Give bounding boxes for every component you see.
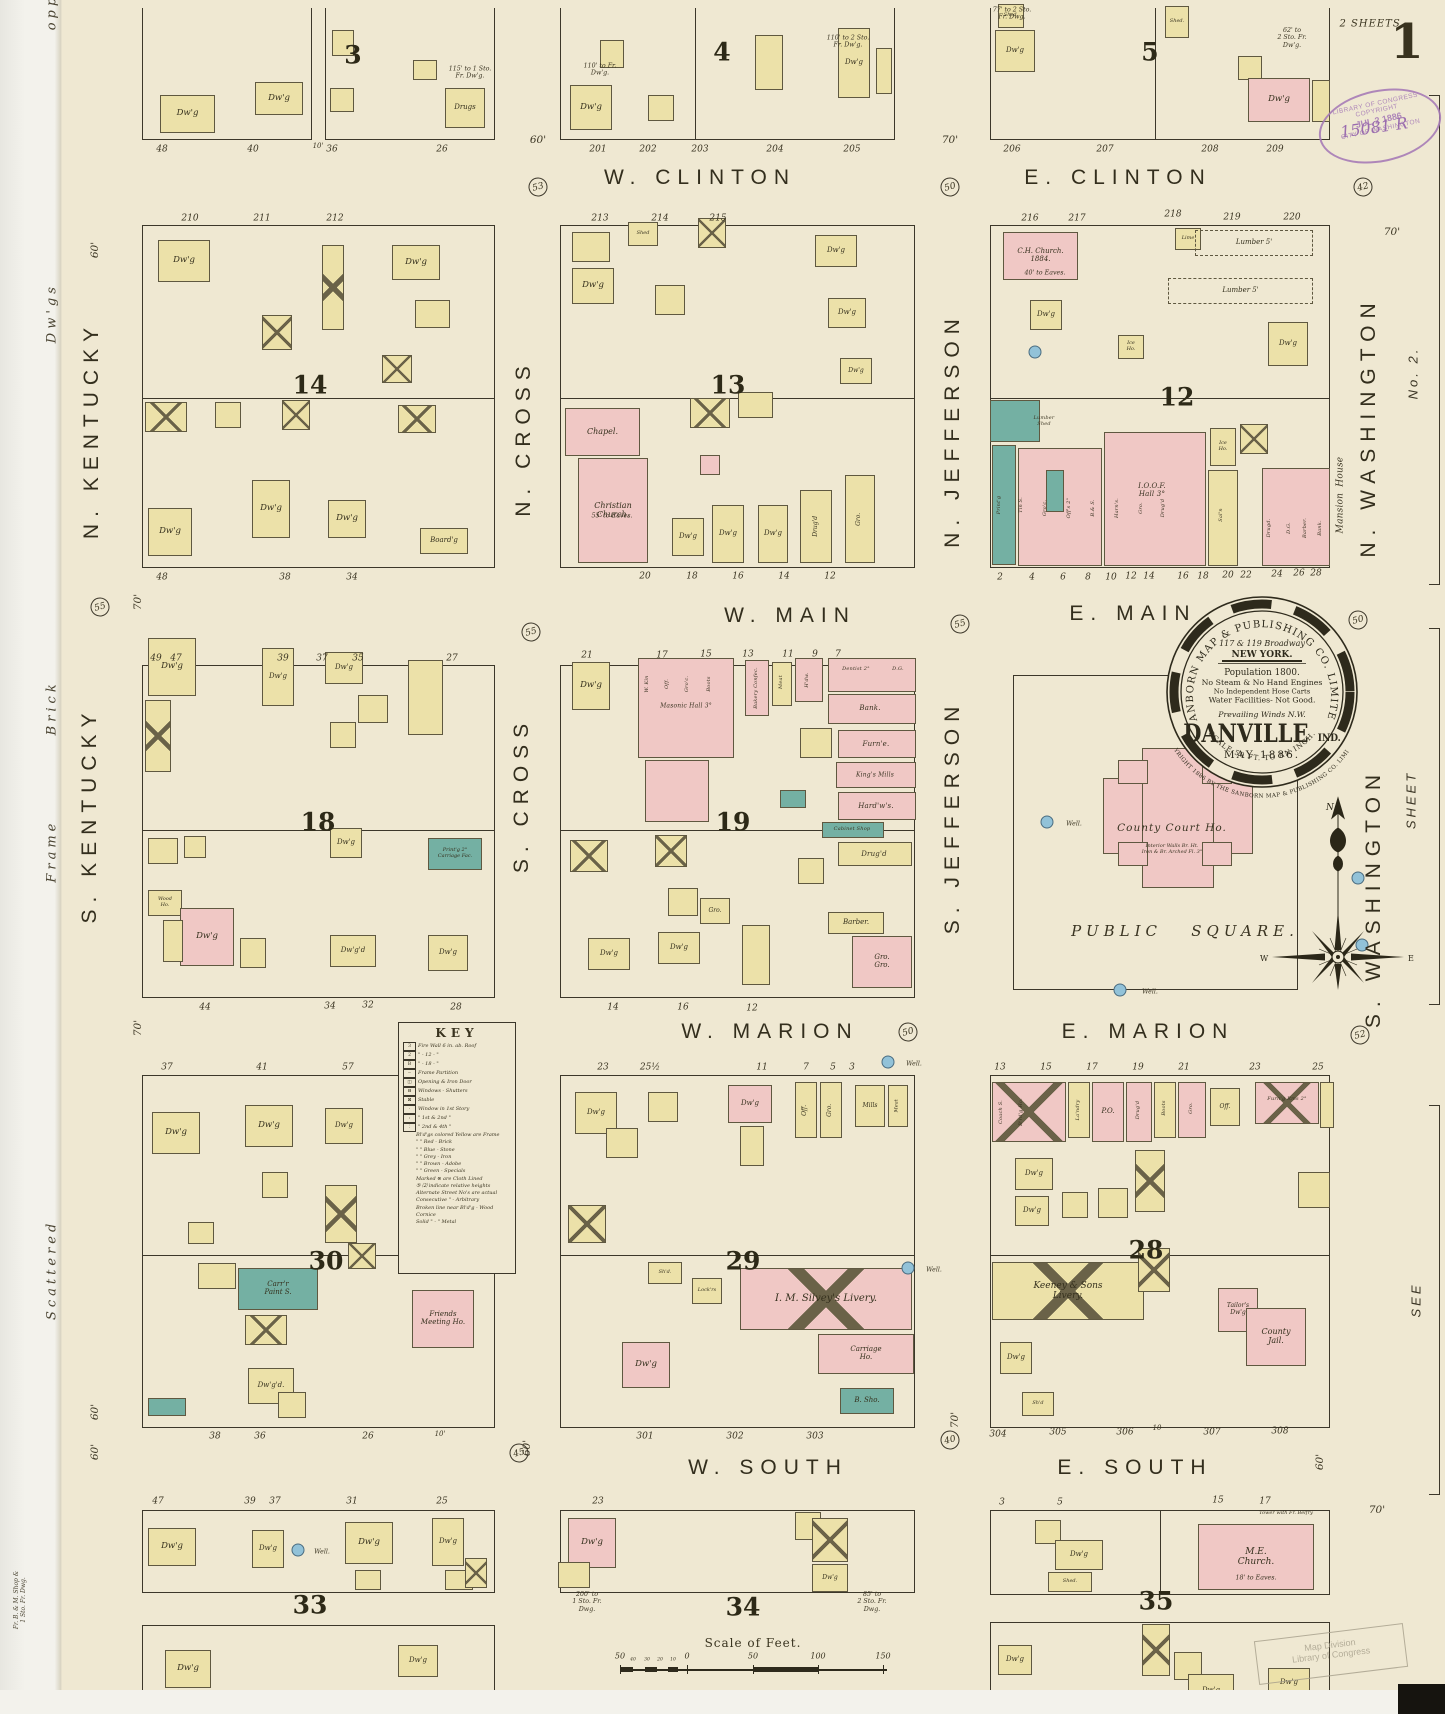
- building: Dw'g: [572, 268, 614, 304]
- key-symbol-icon: 3: [403, 1042, 416, 1051]
- map-annotation: 207: [1096, 145, 1113, 156]
- building-label: Dw'g: [679, 533, 697, 541]
- map-annotation: 10: [670, 1657, 676, 1662]
- map-annotation: 204: [766, 145, 783, 156]
- building-label: Sh'd.: [659, 1270, 672, 1276]
- building-label: Print'g 2° Carriage Fac.: [438, 848, 472, 859]
- scale-bar-tick: [687, 1665, 688, 1674]
- building: Dw'g: [158, 240, 210, 282]
- building-label: B. Sho.: [854, 1397, 879, 1405]
- building: [645, 760, 709, 822]
- building-label: Dw'g'd.: [258, 1382, 285, 1390]
- compass-north-label: N: [1325, 803, 1335, 813]
- block-number: 30: [309, 1247, 344, 1276]
- map-canvas: Dw'gDw'gDrugsDw'gDw'gDw'gShed.Shed.Dw'gD…: [0, 0, 1445, 1714]
- key-line-text: " " Brown - Adobe: [416, 1161, 461, 1168]
- building: [262, 315, 292, 350]
- building: Dw'g: [432, 1518, 464, 1566]
- building-label: Dw'g: [258, 1121, 280, 1131]
- map-annotation: 200' to 1 Sto. Fr. Dwg.: [572, 1591, 601, 1613]
- building-label: Dw'g: [177, 1664, 199, 1674]
- sheet-number: 1: [1390, 14, 1423, 70]
- building: [198, 1263, 236, 1289]
- key-symbol-icon: ⊠: [403, 1096, 416, 1105]
- building: [1062, 1192, 1088, 1218]
- map-annotation: 110' to 2 Sto. Fr. Dw'g.: [827, 35, 870, 50]
- building: [465, 1558, 487, 1588]
- building: [1298, 1172, 1330, 1208]
- building: [648, 1092, 678, 1122]
- sheet-reference-label: SEE: [1409, 1282, 1424, 1317]
- sanborn-title-seal: SANBORN MAP & PUBLISHING CO. LIMITED 117…: [1147, 580, 1377, 812]
- key-line: " " Green - Specials: [403, 1168, 511, 1175]
- map-annotation: Dentist 2°: [842, 667, 870, 673]
- key-line: ◫Opening & Iron Door: [403, 1078, 511, 1087]
- building-label: Meat: [895, 1099, 901, 1112]
- street-label: S. KENTUCKY: [78, 706, 102, 923]
- key-line-text: " " Green - Specials: [416, 1168, 465, 1175]
- map-annotation: 9: [812, 650, 818, 661]
- map-annotation: 6: [1060, 573, 1066, 584]
- map-annotation: 308: [1271, 1427, 1288, 1438]
- block-number: 35: [1139, 1587, 1174, 1616]
- building-label: Dw'g: [173, 256, 195, 266]
- map-annotation: Masonic Hall 3°: [660, 702, 712, 709]
- map-annotation: 0: [684, 1651, 689, 1660]
- key-line: Solid " - " Metal: [403, 1219, 511, 1226]
- map-annotation: Bank.: [1318, 520, 1324, 536]
- map-annotation: Mansion House: [1336, 457, 1347, 534]
- key-symbol-icon: [403, 1208, 414, 1215]
- key-symbol-icon: ⁚: [403, 1123, 416, 1132]
- building: Off.: [795, 1082, 817, 1138]
- map-annotation: 5: [1057, 1498, 1063, 1509]
- scale-bar-tick: [818, 1665, 819, 1674]
- key-line-text: Marked ⊗ are Cloth Lined: [416, 1176, 483, 1183]
- street-width-badge: 55: [519, 620, 542, 643]
- key-line: ·Window in 1st Story: [403, 1105, 511, 1114]
- map-annotation: 38: [209, 1432, 220, 1443]
- key-line: 2" - 12 - ": [403, 1051, 511, 1060]
- map-annotation: B'rd'g Ho.: [1019, 1098, 1025, 1126]
- key-symbol-icon: [403, 1161, 414, 1168]
- map-annotation: 218: [1164, 210, 1181, 221]
- map-annotation: 17: [1086, 1063, 1097, 1074]
- building: Christian Church.: [578, 458, 648, 563]
- map-annotation: 209: [1266, 145, 1283, 156]
- building: Print'g 2° Carriage Fac.: [428, 838, 482, 870]
- building-label: Dw'g: [405, 258, 427, 268]
- map-annotation: 21: [581, 651, 592, 662]
- map-annotation: 303: [806, 1432, 823, 1443]
- map-annotation: 18' to Eaves.: [1236, 1574, 1277, 1581]
- key-line: Bl'd'gs colored Yellow are Frame: [403, 1132, 511, 1139]
- building: Dw'g: [255, 82, 303, 115]
- map-annotation: 2: [997, 573, 1003, 584]
- key-line: Broken line near Bl'd'g - Wood Cornice: [403, 1205, 511, 1220]
- map-annotation: 4: [1029, 573, 1035, 584]
- map-annotation: Gro'c.: [685, 676, 691, 692]
- building-label: Dw'g: [719, 530, 737, 538]
- map-annotation: 17: [1259, 1497, 1270, 1508]
- key-line-text: " 2nd & 4th ": [418, 1124, 451, 1131]
- map-annotation: 26: [362, 1432, 373, 1443]
- building: [145, 402, 187, 432]
- map-annotation: County Court Ho.: [1117, 822, 1227, 834]
- key-line: Consecutive " - Arbitrary: [403, 1197, 511, 1204]
- street-width-badge: 50: [938, 175, 961, 198]
- key-line-text: Broken line near Bl'd'g - Wood Cornice: [416, 1205, 511, 1220]
- key-line: ┄Frame Partition: [403, 1069, 511, 1078]
- building: Dw'g: [658, 932, 700, 964]
- map-annotation: 32: [362, 1001, 373, 1012]
- map-annotation: 213: [591, 214, 608, 225]
- map-annotation: 16: [732, 572, 743, 583]
- map-annotation: Hard'w's.: [858, 802, 894, 810]
- building: [278, 1392, 306, 1418]
- building-label: Off.: [803, 1104, 810, 1115]
- building: [568, 1205, 606, 1243]
- key-line-text: " " Red - Brick: [416, 1139, 452, 1146]
- building: Gro.: [845, 475, 875, 563]
- key-symbol-icon: [403, 1154, 414, 1161]
- map-annotation: 21: [1178, 1063, 1189, 1074]
- building-label: Shed: [637, 231, 650, 237]
- map-annotation: 205: [843, 145, 860, 156]
- map-annotation: 302: [726, 1432, 743, 1443]
- key-line: ⊠Stable: [403, 1096, 511, 1105]
- building-label: Dw'g: [1007, 1354, 1025, 1362]
- map-annotation: 26: [436, 145, 447, 156]
- building-label: Dw'g: [161, 1542, 183, 1552]
- map-annotation: 40: [630, 1657, 636, 1662]
- map-annotation: Furn'g Rms 2°: [1267, 1097, 1306, 1103]
- building-label: Dw'g: [1006, 1656, 1024, 1664]
- map-annotation: 304: [989, 1430, 1006, 1441]
- map-annotation: 15: [1212, 1496, 1223, 1507]
- key-line-text: Stable: [418, 1097, 434, 1104]
- map-annotation: 62' to 2 Sto. Fr. Dw'g.: [1277, 27, 1306, 49]
- street-label: W. SOUTH: [688, 1456, 848, 1480]
- map-annotation: 18: [686, 572, 697, 583]
- alley-line: [1160, 1510, 1161, 1595]
- margin-note-scattered-dwellings: Scattered Frame Brick Dw'gs opp.: [45, 260, 60, 1320]
- building: Dw'g: [1015, 1196, 1049, 1226]
- building: [145, 700, 171, 772]
- building: [798, 858, 824, 884]
- scale-bar-segment: [753, 1667, 818, 1672]
- map-annotation: 60': [89, 1444, 101, 1460]
- key-line-text: Fire Wall 6 in. ab. Roof: [418, 1043, 476, 1050]
- map-annotation: 7: [835, 650, 841, 661]
- building-label: Dw'g: [165, 1128, 187, 1138]
- building-label: Dw'g: [848, 368, 863, 375]
- map-annotation: 15: [1040, 1063, 1051, 1074]
- key-line: Alternate Street No's are actual: [403, 1190, 511, 1197]
- building: Dw'g: [728, 1085, 772, 1123]
- map-annotation: 11: [756, 1063, 767, 1074]
- building: Dw'g: [712, 505, 744, 563]
- building: [828, 658, 916, 692]
- map-annotation: 210: [181, 214, 198, 225]
- building: Dw'g: [252, 1530, 284, 1568]
- building: Dw'g: [160, 95, 215, 133]
- building-label: Dw'g: [335, 1122, 353, 1130]
- building-label: Dw'g: [827, 247, 845, 255]
- seal-state: IND.: [1318, 732, 1341, 744]
- street-width-badge: 53: [526, 175, 549, 198]
- map-annotation: 70': [1369, 1504, 1385, 1516]
- map-annotation: 24: [1271, 570, 1282, 581]
- map-annotation: 206: [1003, 145, 1020, 156]
- building: Dw'g: [148, 1528, 196, 1566]
- map-annotation: Barber.: [1303, 518, 1309, 538]
- building-label: Gro. Gro.: [874, 954, 889, 970]
- street-width-badge: 55: [948, 612, 971, 635]
- building-label: Dw'g: [741, 1100, 759, 1108]
- map-annotation: 39: [244, 1497, 255, 1508]
- map-annotation: 203: [691, 145, 708, 156]
- key-line-text: Bl'd'gs colored Yellow are Frame: [416, 1132, 500, 1139]
- street-label: W. CLINTON: [604, 166, 796, 190]
- building: [1240, 424, 1268, 454]
- map-annotation: 70': [942, 134, 958, 146]
- block-number: 33: [293, 1591, 328, 1620]
- building: Dw'g: [568, 1518, 616, 1568]
- building-label: Lock'rs: [698, 1288, 717, 1294]
- key-symbol-icon: [403, 1219, 414, 1226]
- key-symbol-icon: ◫: [403, 1078, 416, 1087]
- building: Dw'g'd: [330, 935, 376, 967]
- seal-city: NEW YORK.: [1231, 650, 1292, 660]
- block-number: 14: [293, 371, 328, 400]
- key-symbol-icon: [403, 1168, 414, 1175]
- building-label: M.E. Church.: [1238, 1547, 1274, 1567]
- building: Dw'g: [1015, 1158, 1053, 1190]
- building: Dw'g: [392, 245, 440, 280]
- key-line: B" - 18 - ": [403, 1060, 511, 1069]
- building: Shed.: [1165, 6, 1189, 38]
- building: [780, 790, 806, 808]
- building: [1255, 1082, 1319, 1124]
- map-annotation: 48: [156, 145, 167, 156]
- building: [240, 938, 266, 968]
- building-label: Dw'g: [1023, 1207, 1041, 1215]
- map-annotation: 306: [1116, 1428, 1133, 1439]
- building: [1098, 1188, 1128, 1218]
- street-label: S. JEFFERSON: [941, 700, 965, 935]
- map-annotation: 12: [746, 1004, 757, 1015]
- map-key-legend: KEY 3Fire Wall 6 in. ab. Roof2" - 12 - "…: [398, 1022, 516, 1274]
- building-label: Lime: [1182, 236, 1195, 242]
- map-annotation: Gro'c.: [1043, 500, 1049, 516]
- map-annotation: 12: [824, 572, 835, 583]
- building-label: Dw'g: [196, 932, 218, 942]
- map-annotation: 150: [875, 1651, 890, 1660]
- map-annotation: Tower with Fr. Belfry: [1259, 1511, 1313, 1517]
- street-label: E. MARION: [1062, 1020, 1235, 1044]
- scan-page-edge-bottom: [0, 1690, 1445, 1714]
- map-annotation: Drug'd: [1136, 1101, 1142, 1120]
- street-label: N. WASHINGTON: [1357, 296, 1381, 557]
- seal-place: DANVILLE: [1183, 719, 1308, 748]
- map-annotation: 100: [810, 1651, 825, 1660]
- street-label: E. CLINTON: [1024, 166, 1211, 190]
- building: [148, 838, 178, 864]
- map-annotation: 34: [324, 1002, 335, 1013]
- map-annotation: 23: [592, 1497, 603, 1508]
- scale-bar-tick: [753, 1665, 754, 1674]
- building-label: Dw'g: [159, 527, 181, 537]
- building-label: Dw'g: [1268, 95, 1290, 105]
- block-number: 3: [344, 41, 361, 70]
- map-annotation: 77' to 2 Sto. Fr. Dwg.: [993, 7, 1032, 22]
- building: [282, 400, 310, 430]
- building: P.O.: [1092, 1082, 1124, 1142]
- map-annotation: 215: [709, 214, 726, 225]
- map-annotation: 219: [1223, 213, 1240, 224]
- map-annotation: 70': [132, 594, 144, 610]
- building-label: Chapel.: [587, 428, 618, 437]
- map-annotation: 39: [277, 654, 288, 665]
- building: [876, 48, 892, 94]
- building: [655, 835, 687, 867]
- map-annotation: Off's 2°: [1067, 498, 1073, 519]
- alley-line: [695, 8, 696, 140]
- building: Keeney & Sons Livery.: [992, 1262, 1144, 1320]
- sheet-reference-bracket: [1429, 95, 1440, 585]
- map-annotation: Well.: [1066, 820, 1082, 827]
- key-title: KEY: [403, 1026, 511, 1040]
- map-annotation: 50: [748, 1651, 758, 1660]
- compass-east-label: E: [1408, 954, 1414, 963]
- map-annotation: Interior Walls Br. Ht. Iron & Br. Arched…: [1142, 844, 1203, 856]
- map-annotation: 25½: [640, 1063, 660, 1074]
- map-annotation: 12: [1125, 572, 1136, 583]
- map-annotation: 15: [700, 650, 711, 661]
- map-annotation: 35: [352, 654, 363, 665]
- building: Dw'g: [1248, 78, 1310, 122]
- map-annotation: 25: [436, 1497, 447, 1508]
- block-number: 18: [301, 808, 336, 837]
- map-annotation: King's Mills: [856, 771, 894, 778]
- key-symbol-icon: B: [403, 1060, 416, 1069]
- compass-rose-icon: N W E: [1258, 792, 1418, 992]
- key-line-text: Windows - Shutters: [418, 1088, 468, 1095]
- map-annotation: Well.: [926, 1266, 942, 1273]
- map-annotation: 70': [1384, 226, 1400, 238]
- street-label: W. MAIN: [724, 604, 856, 628]
- map-annotation: Bank.: [859, 704, 880, 712]
- well-icon: [292, 1544, 305, 1557]
- key-line-text: Opening & Iron Door: [418, 1079, 472, 1086]
- map-annotation: 307: [1203, 1428, 1220, 1439]
- building: Dw'g: [245, 1105, 293, 1147]
- building: [382, 355, 412, 383]
- key-line-text: " " Blue - Stone: [416, 1147, 455, 1154]
- building: [570, 840, 608, 872]
- map-annotation: Off.: [665, 679, 671, 689]
- building: Dw'g: [995, 30, 1035, 72]
- building: Dw'g: [398, 1645, 438, 1677]
- key-symbol-icon: [403, 1183, 414, 1190]
- building: Dw'g: [572, 662, 610, 710]
- map-annotation: 37: [269, 1497, 280, 1508]
- building: [655, 285, 685, 315]
- building-label: Drugs: [454, 104, 476, 112]
- building-label: Dw'g: [439, 949, 457, 957]
- building: County Jail.: [1246, 1308, 1306, 1366]
- building: Dw'g: [428, 935, 468, 971]
- map-annotation: Well.: [314, 1548, 330, 1555]
- map-annotation: 34: [346, 573, 357, 584]
- building-label: Dw'g: [1279, 340, 1297, 348]
- map-annotation: 30: [644, 1657, 650, 1662]
- building-label: Dw'g: [587, 1109, 605, 1117]
- map-annotation: Drugd.: [1267, 519, 1273, 538]
- map-annotation: 17: [656, 651, 667, 662]
- building: Dw'g: [1030, 300, 1062, 330]
- key-line: " " Red - Brick: [403, 1139, 511, 1146]
- map-annotation: 13: [742, 650, 753, 661]
- building: [1262, 468, 1330, 566]
- building: Ice Ho.: [1210, 428, 1236, 466]
- building-label: Dw'g: [336, 514, 358, 524]
- building: Shed.: [1048, 1572, 1092, 1592]
- building-label: Dw'g: [259, 1545, 277, 1553]
- map-annotation: 26: [1293, 569, 1304, 580]
- building: [1135, 1150, 1165, 1212]
- building: Lock'rs: [692, 1278, 722, 1304]
- building: Dw'g: [148, 508, 192, 556]
- building: [322, 245, 344, 330]
- building: [700, 455, 720, 475]
- map-annotation: 110' to Fr. Dw'g.: [584, 63, 617, 78]
- building-label: Dw'g: [268, 94, 290, 104]
- map-annotation: 305: [1049, 1428, 1066, 1439]
- map-annotation: 10: [1105, 573, 1116, 584]
- building-label: Gro.: [857, 512, 864, 525]
- map-annotation: 14: [778, 572, 789, 583]
- block-number: 28: [1129, 1236, 1164, 1265]
- map-annotation: 36: [326, 145, 337, 156]
- map-annotation: 28: [1310, 569, 1321, 580]
- building-label: County Jail.: [1262, 1328, 1291, 1346]
- map-annotation: 10': [313, 142, 324, 150]
- scan-backing-corner: [1398, 1684, 1445, 1714]
- key-line-text: Window in 1st Story: [418, 1106, 469, 1113]
- building-label: Dw'g: [335, 664, 353, 672]
- street-label: W. MARION: [681, 1020, 858, 1044]
- map-annotation: 37: [161, 1063, 172, 1074]
- key-line: ⁚" 2nd & 4th ": [403, 1123, 511, 1132]
- building: [1118, 760, 1148, 784]
- street-label: N. JEFFERSON: [941, 312, 965, 548]
- key-lines: 3Fire Wall 6 in. ab. Roof2" - 12 - "B" -…: [403, 1042, 511, 1226]
- building: Sh'd.: [648, 1262, 682, 1284]
- map-annotation: 208: [1201, 145, 1218, 156]
- building: [606, 1128, 638, 1158]
- building-label: Dw'g: [177, 109, 199, 119]
- building: [148, 1398, 186, 1416]
- building: Lumber 5': [1195, 230, 1313, 256]
- building-label: Carr'r Paint S.: [264, 1281, 291, 1297]
- building: [572, 232, 610, 262]
- building: [1142, 1624, 1170, 1676]
- building: B. Sho.: [840, 1388, 894, 1414]
- building: Wood Ho.: [148, 890, 182, 916]
- building-label: Dw'g: [337, 839, 355, 847]
